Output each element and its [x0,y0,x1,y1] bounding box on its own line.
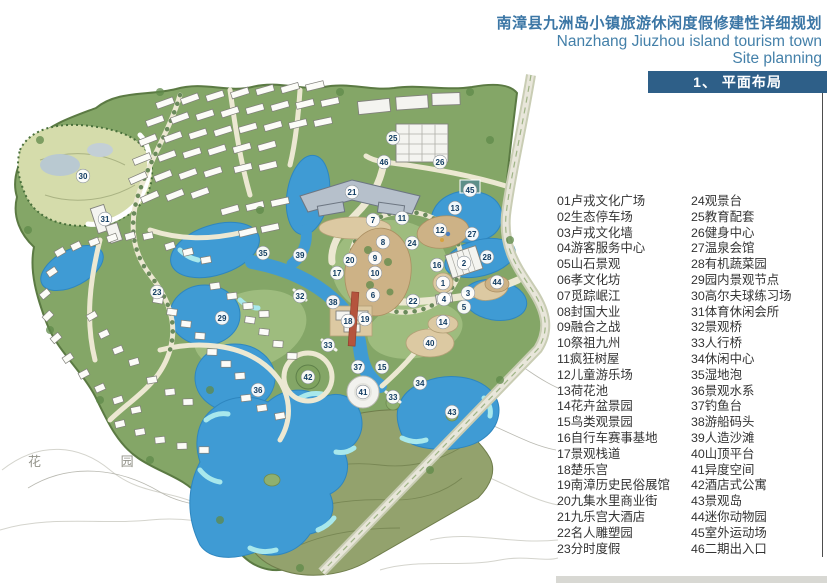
section-label: 1、 平面布局 [693,72,782,92]
svg-text:40: 40 [426,339,435,348]
svg-text:12: 12 [436,226,445,235]
house-block [259,328,270,336]
map-marker-38: 38 [326,295,340,309]
svg-text:9: 9 [373,254,378,263]
map-marker-43: 43 [445,405,459,419]
svg-text:21: 21 [348,188,357,197]
house-block [165,388,176,396]
svg-text:29: 29 [218,314,227,323]
svg-text:44: 44 [493,278,502,287]
map-marker-44: 44 [490,275,504,289]
house-block [227,292,238,300]
map-marker-13: 13 [448,201,462,215]
svg-text:18: 18 [344,317,353,326]
legend-item-34: 34休闲中心 [691,352,792,368]
map-marker-3: 3 [461,286,475,300]
map-marker-23: 23 [150,285,164,299]
map-marker-1: 1 [436,276,450,290]
legend-item-36: 36景观水系 [691,384,792,400]
page-title-en-1: Nanzhang Jiuzhou island tourism town [402,33,822,50]
svg-text:27: 27 [468,230,477,239]
svg-text:20: 20 [346,256,355,265]
svg-text:25: 25 [389,134,398,143]
svg-text:10: 10 [371,269,380,278]
legend-item-39: 39人造沙滩 [691,431,792,447]
page-title-en-2: Site planning [402,50,822,67]
svg-text:7: 7 [371,216,376,225]
legend-item-12: 12儿童游乐场 [557,368,670,384]
legend-item-07: 07觅踪岷江 [557,289,670,305]
map-marker-29: 29 [215,311,229,325]
house-block [275,412,286,420]
map-marker-26: 26 [433,155,447,169]
legend-item-09: 09融合之战 [557,320,670,336]
svg-text:32: 32 [296,292,305,301]
map-marker-16: 16 [430,258,444,272]
house-block [177,443,187,450]
svg-text:13: 13 [451,204,460,213]
svg-text:37: 37 [354,363,363,372]
map-marker-21: 21 [345,185,359,199]
house-block [257,404,268,412]
legend-item-14: 14花卉盆景园 [557,399,670,415]
svg-text:1: 1 [441,279,446,288]
house-block [245,316,256,324]
map-marker-7: 7 [366,213,380,227]
svg-text:3: 3 [466,289,471,298]
svg-text:26: 26 [436,158,445,167]
map-marker-39: 39 [293,248,307,262]
legend-item-31: 31体育休闲会所 [691,305,792,321]
svg-text:22: 22 [409,297,418,306]
legend-item-10: 10祭祖九州 [557,336,670,352]
map-marker-28: 28 [480,250,494,264]
map-marker-19: 19 [358,312,372,326]
house-block [221,361,231,368]
legend-item-40: 40山顶平台 [691,447,792,463]
map-marker-12: 12 [433,223,447,237]
svg-text:41: 41 [359,388,368,397]
legend-item-05: 05山石景观 [557,257,670,273]
house-block [287,353,297,360]
house-block [167,308,178,316]
house-block [241,394,252,402]
svg-text:42: 42 [304,373,313,382]
svg-text:35: 35 [259,249,268,258]
svg-text:8: 8 [381,238,386,247]
map-marker-25: 25 [386,131,400,145]
legend-item-37: 37钓鱼台 [691,399,792,415]
house-block [273,340,283,347]
svg-text:36: 36 [254,386,263,395]
section-bar: 1、 平面布局 [648,71,827,93]
legend-item-24: 24观景台 [691,194,792,210]
legend-item-03: 03卢戎文化墙 [557,226,670,242]
legend-item-22: 22名人雕塑园 [557,526,670,542]
map-marker-2: 2 [457,256,471,270]
legend-item-27: 27温泉会馆 [691,241,792,257]
map-marker-30: 30 [76,169,90,183]
legend-column-2: 24观景台25教育配套26健身中心27温泉会馆28有机蔬菜园29园内景观节点30… [691,194,792,557]
map-marker-9: 9 [368,251,382,265]
legend-item-13: 13荷花池 [557,384,670,400]
legend-item-30: 30高尔夫球练习场 [691,289,792,305]
house-block [201,256,212,264]
svg-text:45: 45 [466,186,475,195]
svg-text:28: 28 [483,253,492,262]
house-block [183,399,193,406]
legend-item-33: 33人行桥 [691,336,792,352]
map-marker-18: 18 [341,314,355,328]
map-marker-24: 24 [405,236,419,250]
svg-text:5: 5 [462,303,467,312]
legend-item-20: 20九集水里商业街 [557,494,670,510]
legend-item-42: 42酒店式公寓 [691,478,792,494]
map-marker-33: 33 [321,338,335,352]
svg-text:23: 23 [153,288,162,297]
map-marker-37: 37 [351,360,365,374]
legend-item-04: 04游客服务中心 [557,241,670,257]
house-block [199,447,209,454]
title-block: 南漳县九洲岛小镇旅游休闲度假修建性详细规划 Nanzhang Jiuzhou i… [402,14,822,67]
map-marker-11: 11 [395,211,409,225]
map-marker-32: 32 [293,289,307,303]
svg-text:30: 30 [79,172,88,181]
map-marker-27: 27 [465,227,479,241]
map-marker-31: 31 [98,212,112,226]
map-marker-20: 20 [343,253,357,267]
legend-item-44: 44迷你动物园 [691,510,792,526]
svg-text:19: 19 [361,315,370,324]
map-marker-45: 45 [463,183,477,197]
svg-text:2: 2 [462,259,467,268]
house-block [207,349,217,356]
legend-item-01: 01卢戎文化广场 [557,194,670,210]
map-marker-10: 10 [368,266,382,280]
svg-text:15: 15 [378,363,387,372]
legend-item-26: 26健身中心 [691,226,792,242]
map-marker-33: 33 [386,390,400,404]
svg-text:46: 46 [380,158,389,167]
map-marker-46: 46 [377,155,391,169]
legend-item-02: 02生态停车场 [557,210,670,226]
legend-item-45: 45室外运动场 [691,526,792,542]
legend-item-46: 46二期出入口 [691,542,792,558]
map-marker-34: 34 [413,376,427,390]
house-block [243,302,253,309]
page-title-cn: 南漳县九洲岛小镇旅游休闲度假修建性详细规划 [402,14,822,33]
sheet-right-border [822,93,823,557]
house-block [181,320,192,328]
legend-item-23: 23分时度假 [557,542,670,558]
legend-column-1: 01卢戎文化广场02生态停车场03卢戎文化墙04游客服务中心05山石景观06孝文… [557,194,670,557]
house-block [155,436,166,444]
svg-text:43: 43 [448,408,457,417]
legend-item-35: 35湿地泡 [691,368,792,384]
map-marker-5: 5 [457,300,471,314]
legend-item-25: 25教育配套 [691,210,792,226]
site-plan-map: 花 园 村 [0,0,560,583]
svg-text:31: 31 [101,215,110,224]
sheet-bottom-edge [556,576,827,583]
legend-item-43: 43景观岛 [691,494,792,510]
legend-item-06: 06孝文化坊 [557,273,670,289]
legend-item-21: 21九乐宫大酒店 [557,510,670,526]
map-marker-42: 42 [301,370,315,384]
legend-item-11: 11疯狂树屋 [557,352,670,368]
map-marker-22: 22 [406,294,420,308]
legend-item-32: 32景观桥 [691,320,792,336]
map-marker-4: 4 [437,292,451,306]
map-marker-40: 40 [423,336,437,350]
legend-item-18: 18楚乐宫 [557,463,670,479]
house-block [147,376,158,384]
svg-text:39: 39 [296,251,305,260]
house-block [259,311,269,318]
house-block [195,332,205,339]
legend-item-38: 38游船码头 [691,415,792,431]
svg-text:24: 24 [408,239,417,248]
plan-sheet: 花 园 村 [0,0,827,583]
svg-text:16: 16 [433,261,442,270]
house-block [235,372,245,379]
legend-item-16: 16自行车赛事基地 [557,431,670,447]
svg-text:38: 38 [329,298,338,307]
map-marker-8: 8 [376,235,390,249]
svg-text:17: 17 [333,269,342,278]
svg-text:6: 6 [371,291,376,300]
map-marker-17: 17 [330,266,344,280]
legend-item-17: 17景观栈道 [557,447,670,463]
map-marker-35: 35 [256,246,270,260]
map-marker-14: 14 [436,315,450,329]
svg-text:33: 33 [324,341,333,350]
legend-item-41: 41异度空间 [691,463,792,479]
legend-item-29: 29园内景观节点 [691,273,792,289]
svg-text:33: 33 [389,393,398,402]
legend-item-19: 19南漳历史民俗展馆 [557,478,670,494]
svg-text:4: 4 [442,295,447,304]
map-marker-36: 36 [251,383,265,397]
map-marker-41: 41 [356,385,370,399]
legend-item-08: 08封国大业 [557,305,670,321]
house-block [210,282,221,290]
map-marker-15: 15 [375,360,389,374]
svg-text:34: 34 [416,379,425,388]
map-marker-6: 6 [366,288,380,302]
svg-text:14: 14 [439,318,448,327]
svg-text:11: 11 [398,214,407,223]
house-block [135,428,146,436]
legend-item-15: 15鸟类观景园 [557,415,670,431]
legend-item-28: 28有机蔬菜园 [691,257,792,273]
